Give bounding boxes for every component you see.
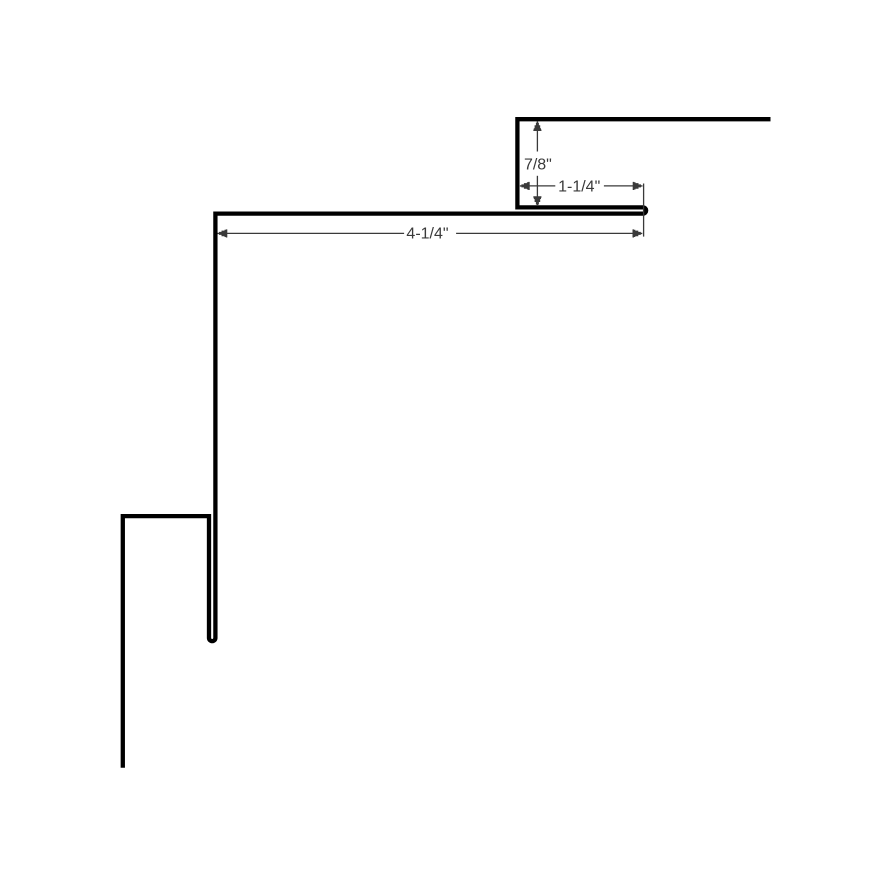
svg-text:1-1/4": 1-1/4" (558, 179, 600, 196)
svg-text:4-1/4": 4-1/4" (406, 226, 448, 243)
svg-text:7/8": 7/8" (524, 156, 552, 173)
